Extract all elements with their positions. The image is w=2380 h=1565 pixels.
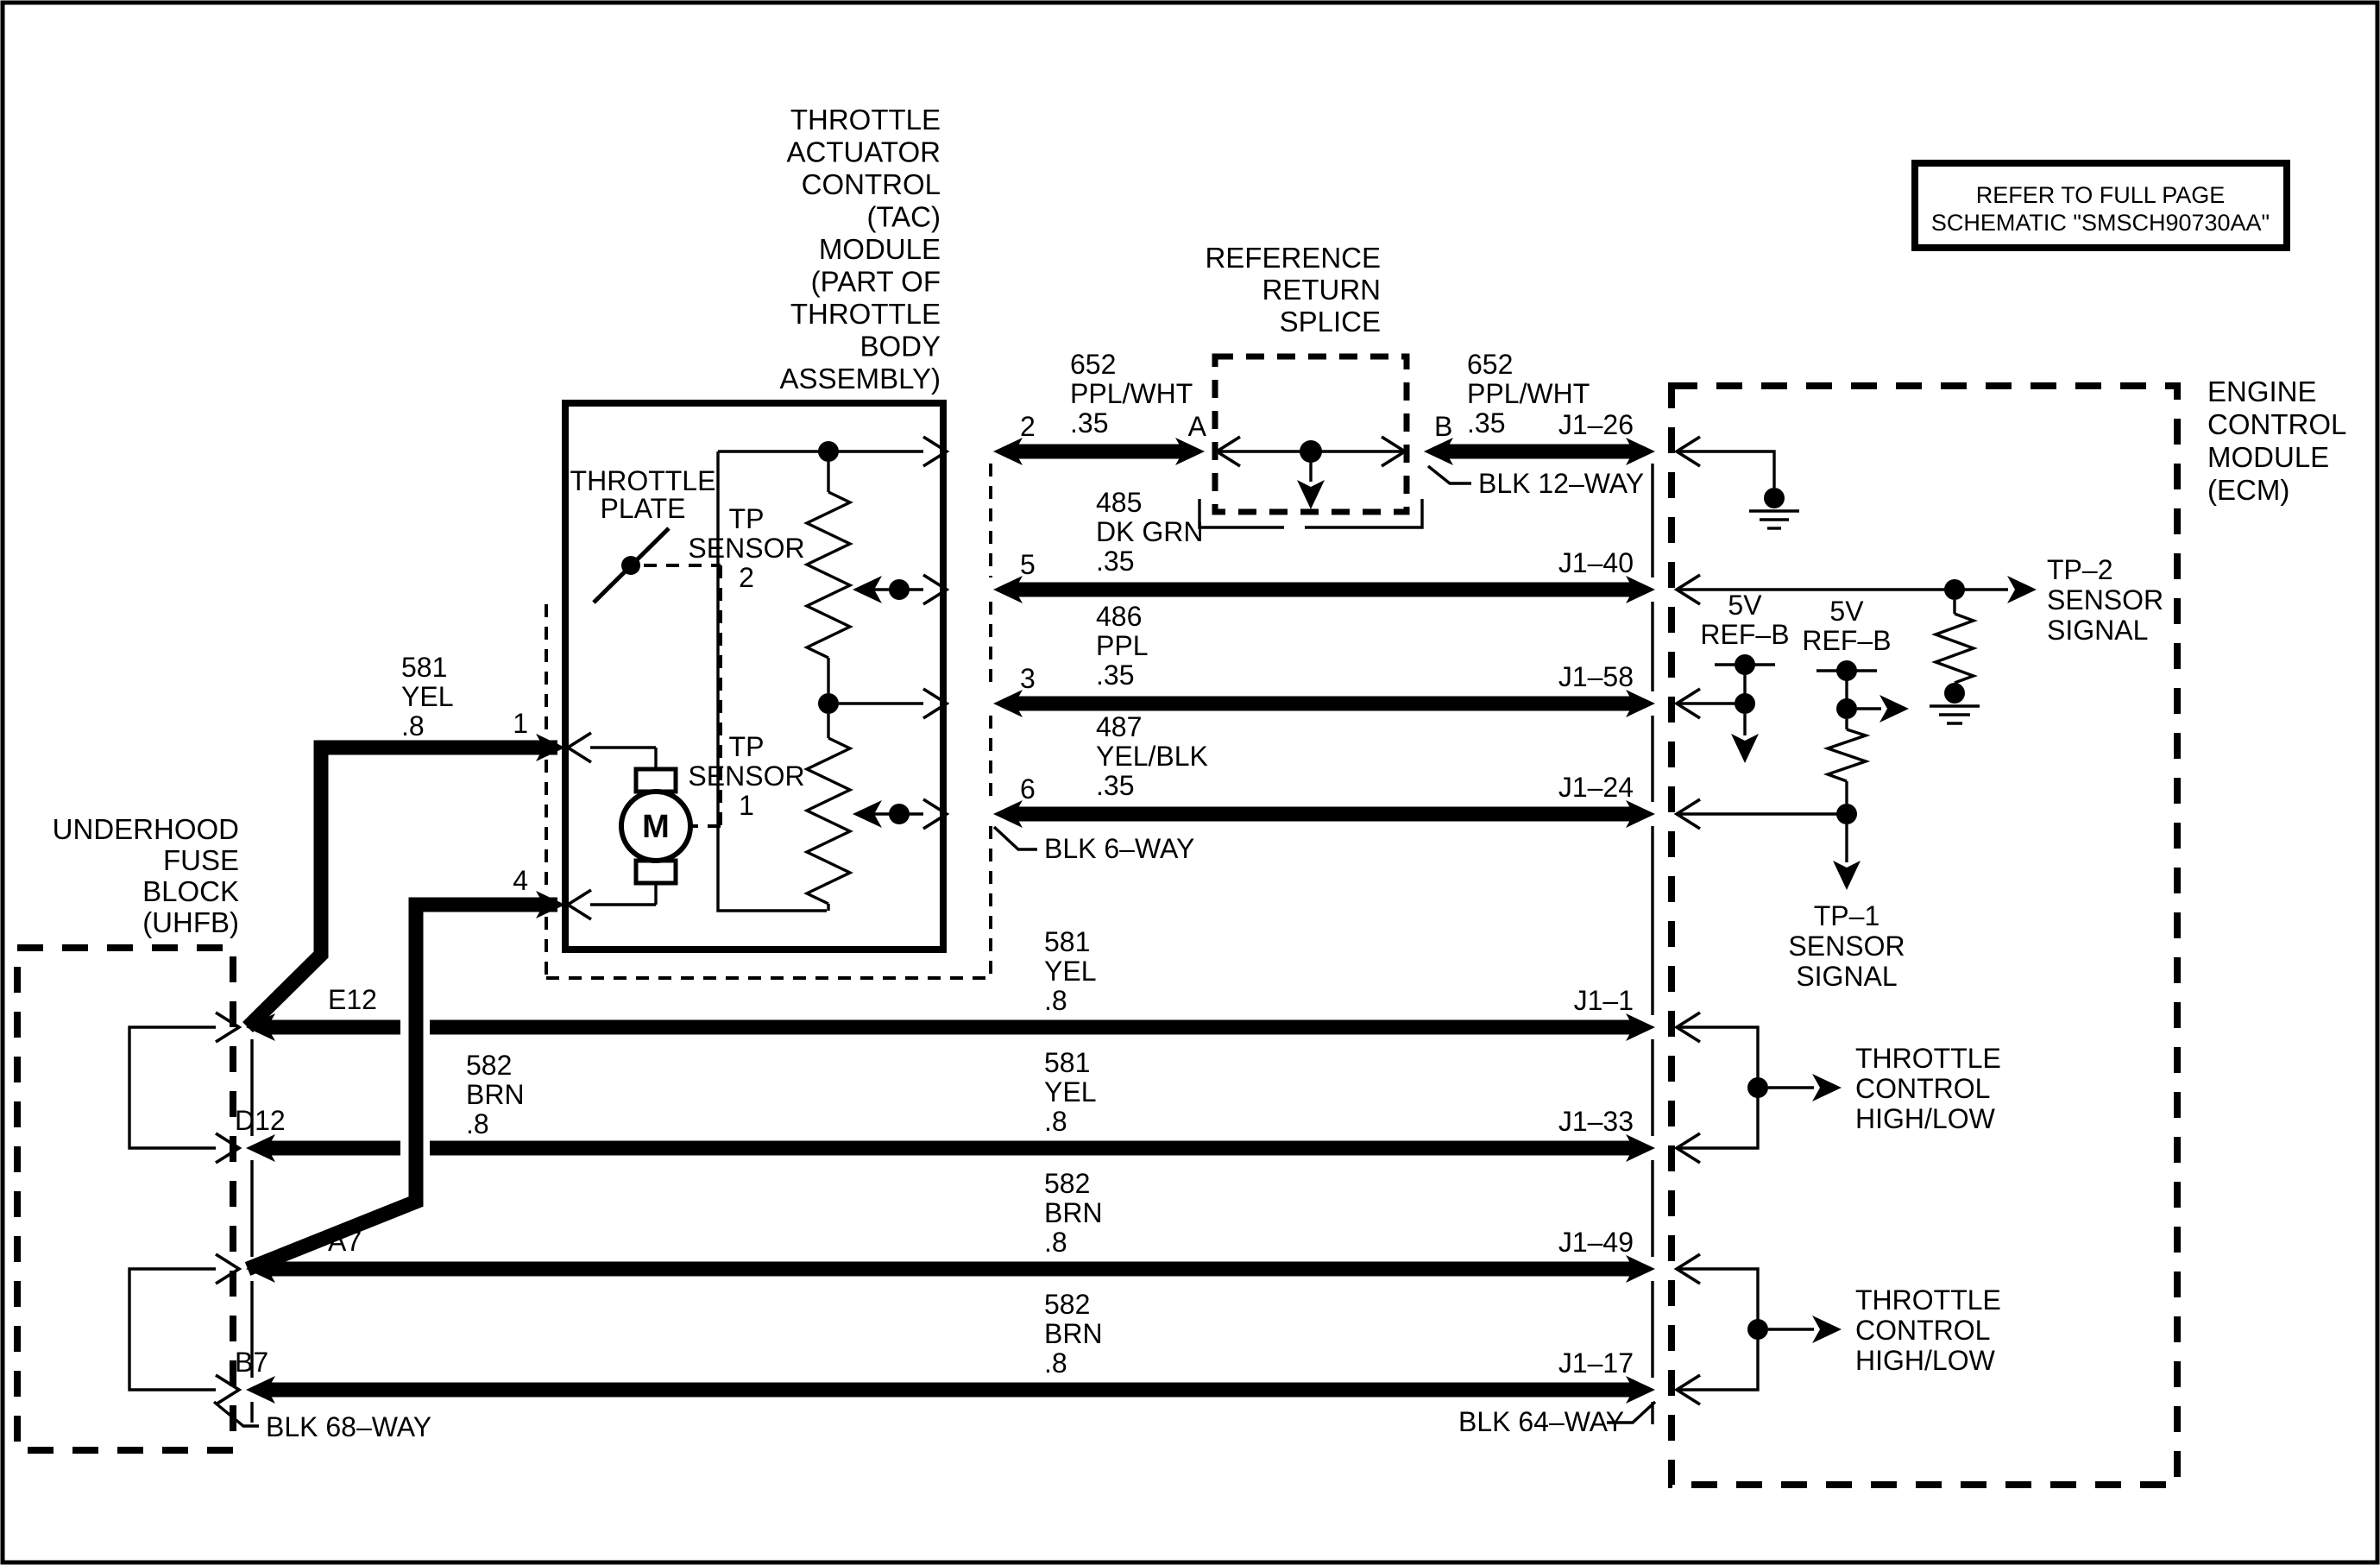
wire-label-color: BRN (1044, 1318, 1103, 1349)
ref-b2-tp1-circuit: 5V REF–B TP–1 SENSOR SIGNAL (1677, 596, 1909, 992)
chevron-left-icon (568, 733, 591, 762)
tac-label-5: MODULE (819, 233, 941, 265)
wire-label-gauge: .8 (1044, 1227, 1067, 1258)
junction-dot (818, 441, 839, 462)
splice-arrow-icon (1297, 480, 1325, 509)
motor-icon: M (590, 748, 690, 905)
tp-sensor1-label-1: TP (729, 731, 765, 762)
resistor-icon (1828, 729, 1866, 781)
wire-labels: 652 PPL/WHT .35 652 PPL/WHT .35 485 DK G… (401, 349, 1590, 1379)
reference-note-box: REFER TO FULL PAGE SCHEMATIC "SMSCH90730… (1915, 163, 2287, 248)
wire-label-gauge: .8 (466, 1108, 489, 1139)
note-line2: SCHEMATIC "SMSCH90730AA" (1931, 210, 2270, 236)
wire-label-gauge: .35 (1096, 770, 1134, 801)
splice-connector-label: BLK 12–WAY (1478, 468, 1644, 499)
tp-sensor2-label-1: TP (729, 503, 765, 534)
tc1-label-1: THROTTLE (1855, 1043, 2001, 1074)
wire-label-circuit: 652 (1467, 349, 1513, 380)
splice-label-2: RETURN (1262, 274, 1382, 306)
wire-label-circuit: 487 (1096, 711, 1142, 742)
wire-label-color: YEL (1044, 1076, 1096, 1107)
wire-label-gauge: .35 (1070, 407, 1108, 439)
wire-label-gauge: .35 (1467, 407, 1505, 439)
tac-connector-label: BLK 6–WAY (1044, 833, 1194, 864)
tp1-label-3: SIGNAL (1796, 961, 1897, 992)
tc2-label-3: HIGH/LOW (1855, 1345, 1996, 1376)
pin-2: 2 (1020, 411, 1036, 442)
plate-pivot-dot (621, 556, 640, 575)
splice-terminal-a: A (1188, 411, 1207, 442)
tac-label-9: ASSEMBLY) (780, 363, 941, 394)
tac-label-3: CONTROL (802, 168, 941, 200)
tc2-label-2: CONTROL (1855, 1315, 1990, 1346)
page-border (3, 3, 2377, 1562)
splice-dot (1300, 440, 1322, 463)
signal-arrow-icon (1812, 1074, 1842, 1101)
tp2-label-3: SIGNAL (2047, 615, 2148, 646)
splice-terminal-b: B (1434, 411, 1452, 442)
wire-label-circuit: 582 (1044, 1168, 1090, 1199)
wire-label-circuit: 582 (466, 1050, 512, 1081)
splice-label-3: SPLICE (1280, 306, 1381, 338)
terminal-j1-40: J1–40 (1558, 547, 1634, 578)
wire-label-color: YEL (401, 681, 453, 712)
uhfb-label-4: (UHFB) (142, 906, 239, 938)
wire-label-circuit: 581 (401, 652, 447, 683)
ecm-label-3: MODULE (2207, 441, 2329, 473)
down-arrow-icon (1833, 861, 1861, 890)
tac-label-7: THROTTLE (790, 298, 941, 330)
signal-arrow-icon (1879, 695, 1909, 723)
ref-b1-label-1: 5V (1728, 590, 1762, 621)
uhfb-connector-label: BLK 68–WAY (266, 1411, 431, 1442)
chevron-left-icon (568, 890, 591, 919)
wire-label-gauge: .35 (1096, 659, 1134, 691)
uhfb-label-1: UNDERHOOD (53, 813, 239, 845)
wire-label-circuit: 652 (1070, 349, 1116, 380)
tp-sensor2-label-3: 2 (739, 562, 754, 593)
uhfb-bus-e12-d12 (129, 1027, 216, 1148)
wire-label-gauge: .8 (1044, 1106, 1067, 1137)
connector-pointer (994, 827, 1037, 849)
tp-sensor1-label-3: 1 (739, 790, 754, 821)
junction-dot (1944, 579, 1965, 600)
tp1-label-1: TP–1 (1814, 900, 1879, 931)
pin-4: 4 (513, 865, 528, 896)
tac-label-2: ACTUATOR (787, 136, 941, 168)
tp-sensor2-label-2: SENSOR (688, 533, 804, 564)
uhfb-outline (17, 948, 233, 1450)
tp2-label-2: SENSOR (2047, 584, 2163, 615)
signal-arrow-icon (2007, 576, 2037, 603)
tp2-label-1: TP–2 (2047, 554, 2112, 585)
resistor-icon (807, 492, 850, 658)
pin-1: 1 (513, 708, 528, 739)
signal-arrow-icon (1812, 1316, 1842, 1343)
tp-sensors: TP SENSOR 2 TP SENSOR 1 (688, 441, 923, 911)
ground-icon (1930, 706, 1980, 723)
motor-label: M (642, 809, 670, 845)
wire-label-color: YEL/BLK (1096, 741, 1208, 772)
junction-dot (889, 579, 910, 600)
ecm-module: ENGINE CONTROL MODULE (ECM) J1–26 J1–40 … (1458, 375, 2346, 1485)
wire-label-circuit: 485 (1096, 487, 1142, 518)
wire-label-gauge: .8 (1044, 985, 1067, 1016)
throttle-control-1: THROTTLE CONTROL HIGH/LOW (1677, 1027, 2001, 1148)
wire-label-circuit: 582 (1044, 1289, 1090, 1320)
throttle-plate-label-1: THROTTLE (570, 465, 716, 496)
wire-label-gauge: .35 (1096, 546, 1134, 577)
wire-label-gauge: .8 (1044, 1347, 1067, 1379)
wire-label-color: PPL (1096, 630, 1148, 661)
wire-581-pin1 (248, 748, 557, 1027)
terminal-b7: B7 (235, 1347, 268, 1378)
wire-label-circuit: 581 (1044, 1047, 1090, 1078)
tac-label-1: THROTTLE (790, 104, 941, 136)
tp-sensor1-label-2: SENSOR (688, 760, 804, 792)
down-arrow-icon (1731, 734, 1759, 763)
resistor-icon (807, 738, 850, 904)
uhfb-label-3: BLOCK (142, 875, 239, 907)
terminal-j1-26: J1–26 (1558, 409, 1634, 440)
uhfb-module: UNDERHOOD FUSE BLOCK (UHFB) E12 D12 A7 B… (17, 813, 431, 1450)
ecm-label-1: ENGINE (2207, 375, 2317, 407)
terminal-j1-17: J1–17 (1558, 1347, 1634, 1379)
terminal-j1-49: J1–49 (1558, 1227, 1634, 1258)
terminal-e12: E12 (328, 984, 377, 1015)
junction-dot (889, 804, 910, 824)
tac-label-6: (PART OF (811, 266, 941, 298)
tac-label-4: (TAC) (866, 201, 941, 233)
ref-b2-label-1: 5V (1829, 596, 1864, 627)
junction-dot (818, 693, 839, 714)
wire-label-circuit: 581 (1044, 926, 1090, 957)
terminal-j1-24: J1–24 (1558, 772, 1634, 803)
wiring-diagram: REFER TO FULL PAGE SCHEMATIC "SMSCH90730… (0, 0, 2380, 1565)
tc1-label-2: CONTROL (1855, 1073, 1990, 1104)
wire-label-color: DK GRN (1096, 516, 1203, 547)
resistor-icon (1936, 614, 1974, 683)
ecm-label-2: CONTROL (2207, 408, 2346, 440)
schematic-page: REFER TO FULL PAGE SCHEMATIC "SMSCH90730… (0, 0, 2380, 1565)
wire-label-color: PPL/WHT (1070, 378, 1193, 409)
wire-label-color: PPL/WHT (1467, 378, 1590, 409)
tc1-label-3: HIGH/LOW (1855, 1103, 1996, 1134)
ref-b1-label-2: REF–B (1700, 619, 1789, 650)
tp1-label-2: SENSOR (1788, 931, 1905, 962)
ecm-connector-label: BLK 64–WAY (1458, 1406, 1624, 1437)
tc2-label-1: THROTTLE (1855, 1284, 2001, 1316)
throttle-plate-label-2: PLATE (601, 493, 686, 524)
terminal-j1-58: J1–58 (1558, 661, 1634, 692)
wire-label-color: BRN (466, 1079, 525, 1110)
terminal-j1-33: J1–33 (1558, 1106, 1634, 1137)
wire-label-circuit: 486 (1096, 601, 1142, 632)
terminal-d12: D12 (235, 1105, 286, 1136)
wires (246, 438, 1655, 1404)
uhfb-label-2: FUSE (163, 844, 239, 876)
ecm-label-4: (ECM) (2207, 474, 2289, 506)
uhfb-bus-a7-b7 (129, 1269, 216, 1390)
throttle-control-2: THROTTLE CONTROL HIGH/LOW (1677, 1269, 2001, 1390)
note-line1: REFER TO FULL PAGE (1976, 182, 2226, 208)
wire-label-gauge: .8 (401, 710, 425, 741)
splice-label-1: REFERENCE (1205, 242, 1381, 274)
wire-label-color: BRN (1044, 1197, 1103, 1228)
ref-b1-circuit: 5V REF–B (1677, 590, 1790, 763)
pin-6: 6 (1020, 773, 1036, 805)
tac-module: THROTTLE ACTUATOR CONTROL (TAC) MODULE (… (513, 104, 1194, 978)
pin-3: 3 (1020, 663, 1036, 694)
pin-5: 5 (1020, 549, 1036, 580)
wire-label-color: YEL (1044, 956, 1096, 987)
terminal-j1-1: J1–1 (1574, 985, 1634, 1016)
tac-label-8: BODY (859, 331, 941, 363)
ref-b2-label-2: REF–B (1802, 625, 1891, 656)
connector-pointer (1428, 466, 1471, 483)
